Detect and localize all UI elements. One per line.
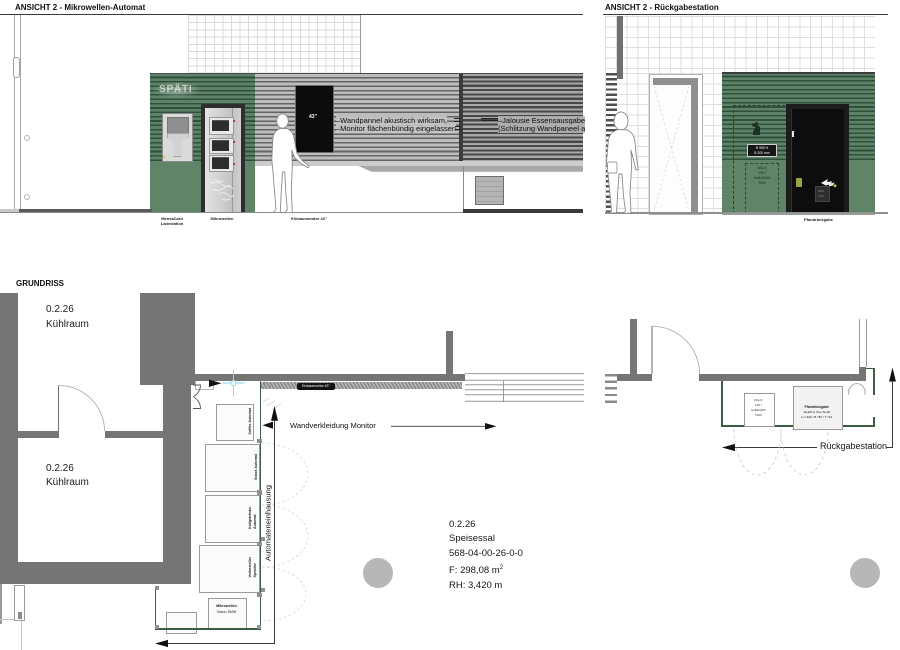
svg-text:Automateneinhausung: Automateneinhausung (264, 485, 273, 561)
